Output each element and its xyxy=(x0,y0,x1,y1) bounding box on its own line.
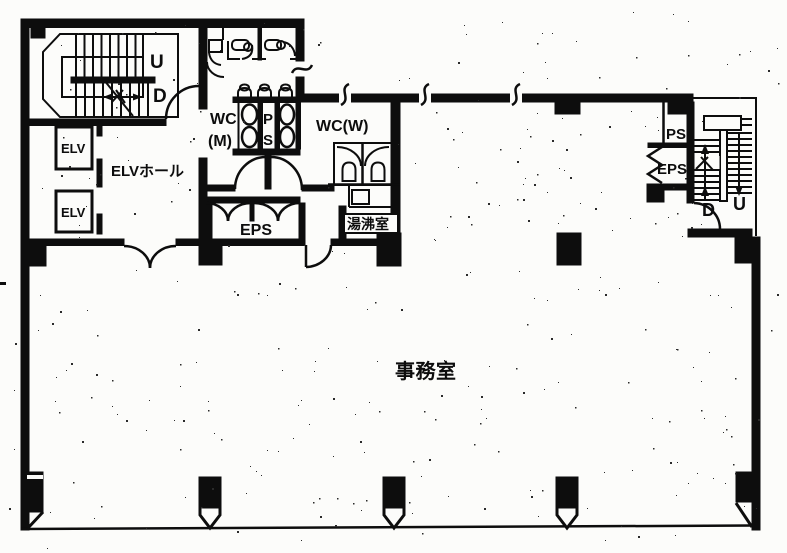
svg-text:ELV: ELV xyxy=(61,141,86,156)
svg-text:P: P xyxy=(263,111,273,128)
svg-text:ELV: ELV xyxy=(61,205,86,220)
svg-text:WC: WC xyxy=(210,111,237,128)
svg-text:ELVホール: ELVホール xyxy=(111,163,184,180)
svg-text:PS: PS xyxy=(666,126,686,143)
svg-text:(M): (M) xyxy=(208,133,232,150)
svg-text:S: S xyxy=(263,132,273,149)
svg-text:U: U xyxy=(150,52,164,73)
svg-text:EPS: EPS xyxy=(240,222,272,239)
svg-text:湯沸室: 湯沸室 xyxy=(347,216,389,232)
svg-text:D: D xyxy=(153,86,167,107)
svg-text:U: U xyxy=(733,194,746,214)
svg-text:事務室: 事務室 xyxy=(395,359,457,383)
svg-text:WC(W): WC(W) xyxy=(316,118,368,135)
